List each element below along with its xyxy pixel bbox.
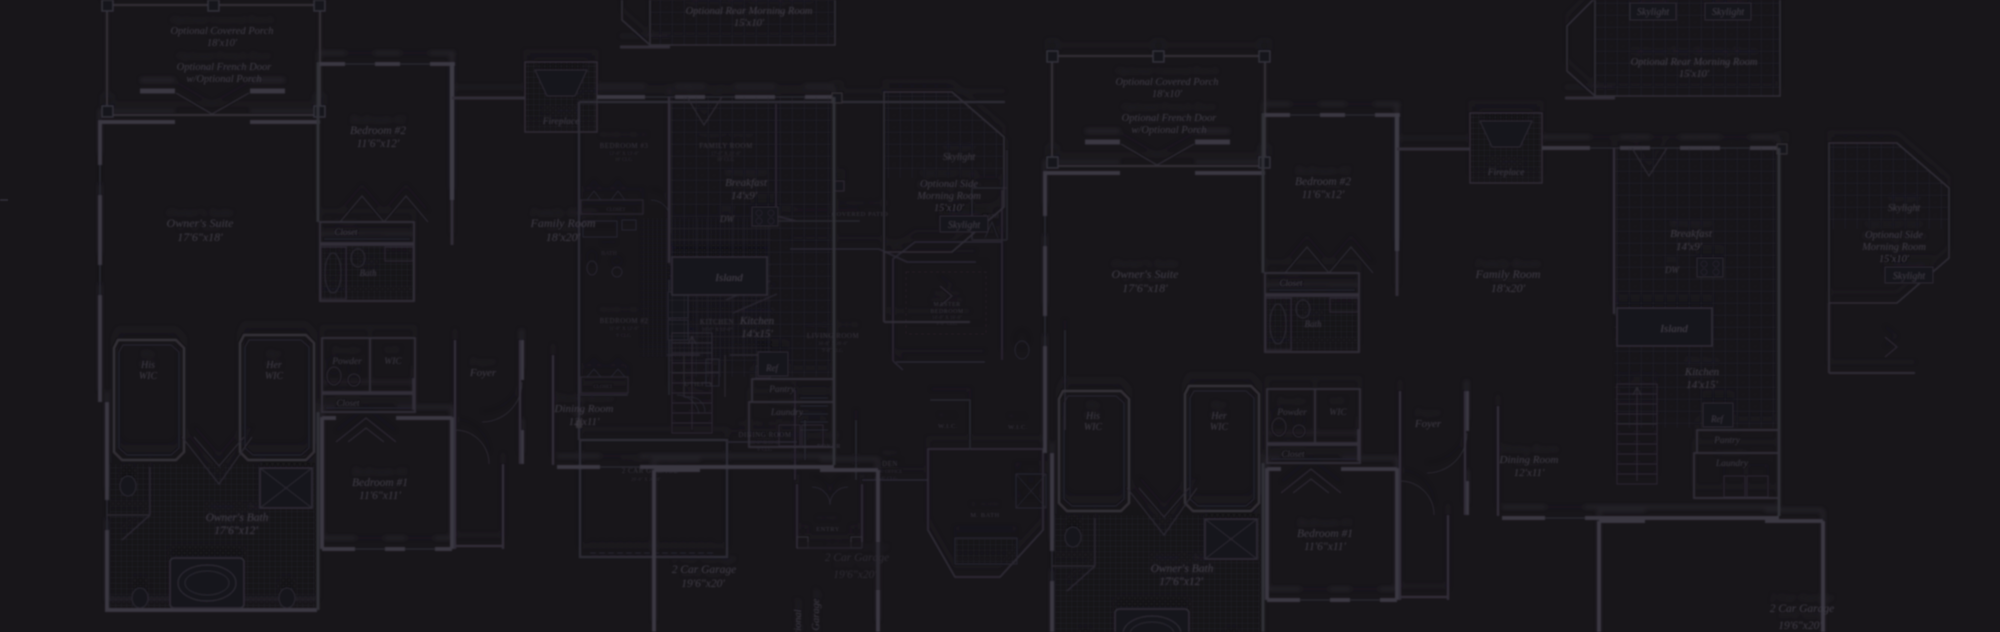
svg-text:14'-0" X 16'-0": 14'-0" X 16'-0"	[932, 316, 962, 321]
svg-text:M. BATH: M. BATH	[970, 512, 1000, 519]
svg-text:W.I.C.: W.I.C.	[1008, 424, 1028, 431]
svg-text:19'6"x20': 19'6"x20'	[681, 578, 725, 590]
svg-text:2 Car Garage: 2 Car Garage	[672, 564, 737, 576]
svg-text:BATH: BATH	[601, 251, 617, 257]
svg-text:BEDROOM: BEDROOM	[930, 309, 964, 315]
svg-text:ENTRY: ENTRY	[816, 526, 840, 533]
svg-text:20'-0" X 20'-0": 20'-0" X 20'-0"	[631, 478, 661, 483]
svg-text:9' CLG.: 9' CLG.	[757, 448, 773, 453]
svg-text:W.I.C.: W.I.C.	[938, 423, 958, 430]
svg-text:COVERED PATIO: COVERED PATIO	[832, 211, 889, 218]
svg-text:9' CLG.: 9' CLG.	[616, 334, 632, 339]
svg-text:11'-0" X 12'-0": 11'-0" X 12'-0"	[609, 327, 639, 332]
svg-text:CLOSET: CLOSET	[607, 208, 626, 213]
svg-text:CLOSET: CLOSET	[594, 385, 613, 390]
svg-text:12'-0" X 13'-0": 12'-0" X 13'-0"	[609, 152, 639, 157]
svg-text:W/ OFFICE: W/ OFFICE	[878, 470, 903, 475]
svg-text:10' CLG.: 10' CLG.	[615, 158, 633, 163]
svg-text:UTILITY: UTILITY	[684, 381, 713, 388]
svg-text:DEN: DEN	[882, 460, 898, 468]
svg-text:DINING ROOM: DINING ROOM	[738, 431, 791, 439]
svg-text:MASTER: MASTER	[933, 302, 960, 308]
svg-text:BEDROOM #3: BEDROOM #3	[600, 142, 649, 150]
